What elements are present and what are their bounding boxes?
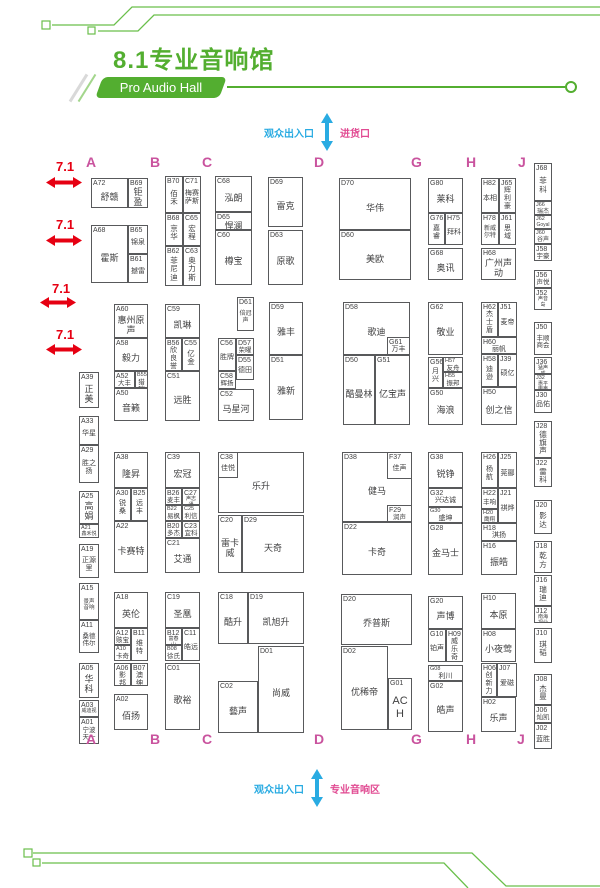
booth-B22: B22易枫 xyxy=(165,505,182,521)
booth-C27: C27声志通 xyxy=(182,488,200,505)
booth-A29: A29胜之扬 xyxy=(79,445,99,483)
booth-code: D70 xyxy=(340,179,410,187)
booth-code: G51 xyxy=(376,356,409,364)
booth-code: J68 xyxy=(535,164,551,172)
booth-D63: D63原歌 xyxy=(268,230,303,285)
hall-letter-B-top: B xyxy=(150,155,160,169)
booth-code: G28 xyxy=(429,524,462,532)
booth-name: 佰禾 xyxy=(166,185,182,212)
booth-name: 爱磁 xyxy=(498,672,516,696)
booth-A02: A02佰扬 xyxy=(114,694,148,730)
booth-A19: A19正源里 xyxy=(79,544,99,578)
booth-code: J08 xyxy=(535,675,551,683)
booth-D55: D55德田 xyxy=(236,355,254,380)
booth-code: D02 xyxy=(342,647,387,655)
booth-B56: B56欣良誉 xyxy=(165,338,182,371)
booth-C55: C55亿金 xyxy=(182,338,200,371)
left-right-arrow-icon xyxy=(40,297,76,308)
booth-code: H68 xyxy=(482,249,515,257)
booth-name: 广州声动 xyxy=(482,257,515,279)
booth-code: A39 xyxy=(80,373,98,381)
booth-code: H75 xyxy=(446,214,462,222)
booth-A38: A38隆昇 xyxy=(114,452,148,488)
booth-name: 皓声 xyxy=(429,690,462,731)
header-rule-end-circle xyxy=(565,81,577,93)
booth-A21: A21鑫禾悦 xyxy=(79,524,99,538)
booth-D02: D02优稀帝 xyxy=(341,646,388,730)
pro-audio-zone-label: 专业音响区 xyxy=(330,781,380,796)
booth-code: J20 xyxy=(535,501,551,509)
booth-name: 创新力 xyxy=(482,672,496,696)
booth-name: 本相 xyxy=(482,187,498,212)
booth-name: 本原 xyxy=(482,602,515,628)
booth-B65: B65锦泉 xyxy=(128,225,148,254)
booth-B12: B12富春山 xyxy=(165,628,182,645)
booth-name: 隆昇 xyxy=(115,461,147,487)
booth-code: J18 xyxy=(535,542,551,550)
booth-G08: G08利川 xyxy=(428,665,463,681)
booth-name: 声博 xyxy=(429,605,462,628)
left-right-arrow-icon xyxy=(46,235,82,246)
booth-name: 盛坤 xyxy=(429,515,462,523)
booth-code: C60 xyxy=(216,231,251,239)
booth-name: 富春山 xyxy=(166,637,181,645)
booth-G32: G32兴达诚 xyxy=(428,488,463,507)
hall-letter-C-bottom: C xyxy=(202,732,212,746)
booth-name: 杰曼 xyxy=(535,683,551,704)
hall-letter-B-bottom: B xyxy=(150,732,160,746)
booth-name: 威迪视 xyxy=(80,709,98,716)
booth-name: 钜盈 xyxy=(129,187,147,208)
booth-G62: G62敬业 xyxy=(428,302,463,355)
booth-D22: D22卡奇 xyxy=(342,522,412,575)
booth-code: G38 xyxy=(429,453,462,461)
aisle-label-3: 7.1 xyxy=(52,282,70,295)
booth-A25: A25高娟 xyxy=(79,491,99,524)
booth-name: 万丰 xyxy=(388,346,409,355)
booth-name: 谷声 xyxy=(535,237,551,244)
booth-code: D51 xyxy=(270,356,302,364)
left-right-arrow-icon xyxy=(46,344,82,355)
booth-name: 易枫 xyxy=(166,513,181,521)
booth-C23: C23宜科 xyxy=(182,521,200,538)
header-rule xyxy=(227,86,565,88)
hall-letter-C-top: C xyxy=(202,155,212,169)
booth-code: B62 xyxy=(166,247,182,255)
booth-code: J30 xyxy=(535,391,551,399)
booth-name: 毅力 xyxy=(115,347,147,370)
booth-name: 宏冠 xyxy=(166,461,199,487)
booth-H62: H62杰士盾 xyxy=(481,302,498,337)
booth-name: 马星河 xyxy=(219,398,253,420)
booth-D19: D19凯旭升 xyxy=(248,592,304,644)
booth-code: C65 xyxy=(184,214,200,222)
booth-code: H08 xyxy=(482,630,515,638)
booth-C56: C56胜牌 xyxy=(218,338,236,371)
up-down-arrow-icon xyxy=(311,769,323,807)
booth-name: 宏程 xyxy=(184,222,200,245)
booth-B07: B07澳绅 xyxy=(131,663,148,686)
booth-code: A19 xyxy=(80,545,98,553)
booth-H16: H16振皓 xyxy=(481,541,517,575)
booth-D60: D60美欧 xyxy=(339,230,411,280)
booth-code: A33 xyxy=(80,417,98,425)
booth-code: H02 xyxy=(482,698,515,706)
booth-name: 杨航 xyxy=(482,461,497,487)
booth-code: C19 xyxy=(166,593,199,601)
booth-G02: G02皓声 xyxy=(428,681,463,732)
booth-code: J25 xyxy=(499,453,516,461)
booth-name: 锐铮 xyxy=(429,461,462,487)
booth-B20: B20多杰 xyxy=(165,521,182,538)
booth-A39: A39正美 xyxy=(79,372,99,408)
booth-code: C55 xyxy=(183,339,199,347)
booth-name: 创之信 xyxy=(482,396,516,424)
booth-name: 优稀帝 xyxy=(342,655,387,729)
booth-name: 菲科 xyxy=(535,172,551,200)
booth-name: 品佑 xyxy=(535,399,551,412)
booth-C38: C38佳悦 xyxy=(218,452,238,478)
booth-name: 南海视业 xyxy=(535,615,551,623)
booth-A52: A52大丰 xyxy=(114,371,135,388)
booth-F37: F37佳声 xyxy=(387,452,412,479)
booth-name: 卡奇 xyxy=(115,653,130,661)
booth-code: C18 xyxy=(219,593,247,601)
booth-name: 樽宝 xyxy=(216,239,251,284)
booth-B11: B11维特 xyxy=(131,628,148,661)
booth-C52: C52马星河 xyxy=(218,389,254,421)
booth-H82: H82本相 xyxy=(481,178,499,213)
booth-C71: C71梅赛萨斯 xyxy=(183,176,201,213)
booth-name: 奥力斯 xyxy=(184,255,200,285)
booth-name: 德田 xyxy=(237,364,253,379)
booth-code: C51 xyxy=(166,372,199,380)
booth-code: J02 xyxy=(535,724,551,732)
booth-C51: C51远胜 xyxy=(165,371,200,421)
booth-code: H55 xyxy=(444,373,462,380)
booth-B25: B25远丰 xyxy=(131,488,148,521)
booth-code: A30 xyxy=(115,489,130,497)
booth-C65: C65宏程 xyxy=(183,213,201,246)
booth-code: H78 xyxy=(482,214,498,222)
booth-J66: J66瑞杰 xyxy=(534,201,552,215)
aisle-label-1: 7.1 xyxy=(56,160,74,173)
booth-G38: G38锐铮 xyxy=(428,452,463,488)
booth-name: 卡赛特 xyxy=(115,530,147,572)
booth-name: 澳绅 xyxy=(132,672,147,686)
booth-J22: J22雷科 xyxy=(534,458,552,487)
hall-letter-H-top: H xyxy=(466,155,476,169)
booth-A68: A68霍斯 xyxy=(91,225,128,283)
booth-name: 亿宝声 xyxy=(376,364,409,424)
booth-code: G02 xyxy=(429,682,462,690)
booth-code: D22 xyxy=(343,523,411,531)
booth-name: 宜科 xyxy=(183,530,199,538)
booth-D01: D01尚威 xyxy=(258,646,304,733)
booth-code: H16 xyxy=(482,542,516,550)
bottom-gate: 观众出入口 专业音响区 xyxy=(17,768,600,808)
booth-code: G10 xyxy=(429,630,445,638)
booth-code: D60 xyxy=(340,231,410,239)
booth-code: G76 xyxy=(429,214,444,222)
booth-name: 兴达诚 xyxy=(429,497,462,506)
booth-code: C68 xyxy=(216,177,251,185)
booth-name: 英伦 xyxy=(115,601,147,627)
booth-J08: J08杰曼 xyxy=(534,674,552,705)
booth-code: A60 xyxy=(115,305,147,313)
booth-A05: A05华科 xyxy=(79,663,99,698)
booth-name: 欣良誉 xyxy=(166,347,181,371)
booth-code: H50 xyxy=(482,388,516,396)
booth-C39: C39宏冠 xyxy=(165,452,200,488)
booth-D50: D50酷曼林 xyxy=(343,355,375,425)
booth-D29: D29天奇 xyxy=(242,515,304,573)
hall-letter-D-bottom: D xyxy=(314,732,324,746)
booth-code: A15 xyxy=(80,584,98,592)
booth-code: H57 xyxy=(444,358,462,365)
booth-C11: C11皓远 xyxy=(182,628,200,661)
booth-H08: H08小夜莺 xyxy=(481,629,516,662)
booth-C01: C01歌裕 xyxy=(165,663,200,730)
booth-C21: C21艾通 xyxy=(165,538,200,573)
booth-name: 正美 xyxy=(80,381,98,407)
aisle-label-4: 7.1 xyxy=(56,328,74,341)
booth-name: 德旗声 xyxy=(535,430,551,457)
circuit-decoration-top xyxy=(0,0,600,40)
booth-H18: H18淇扬 xyxy=(481,523,517,541)
booth-A12: A12赅宝 xyxy=(114,628,131,645)
booth-H60: H60丽帆 xyxy=(481,337,517,354)
booth-code: A22 xyxy=(115,522,147,530)
booth-code: D58 xyxy=(344,303,409,311)
booth-G51: G51亿宝声 xyxy=(375,355,410,425)
booth-code: A50 xyxy=(115,389,147,397)
booth-name: 蓝胜 xyxy=(535,732,551,748)
booth-code: G56 xyxy=(429,358,442,366)
booth-code: B55 xyxy=(136,372,147,379)
booth-J10: J10琪韬 xyxy=(534,628,552,663)
booth-code: D50 xyxy=(344,356,374,364)
booth-H20: H20鹰翔 xyxy=(481,509,498,523)
booth-code: G50 xyxy=(429,389,462,397)
booth-name: 皓远 xyxy=(183,637,199,660)
booth-H75: H75拜科 xyxy=(445,213,463,245)
booth-name: 荣曜 xyxy=(237,347,253,355)
booth-name: 思域 xyxy=(500,222,515,244)
booth-code: D61 xyxy=(238,298,253,306)
booth-H58: H58迪逊 xyxy=(481,354,498,387)
booth-G10: G10铂声 xyxy=(428,629,446,662)
booth-code: A38 xyxy=(115,453,147,461)
booth-J39: J39硕亿 xyxy=(498,354,517,387)
booth-name: 友舟 xyxy=(444,365,462,372)
booth-H22: H22丰响 xyxy=(481,488,498,509)
booth-code: A18 xyxy=(115,593,147,601)
booth-code: J07 xyxy=(498,664,516,672)
booth-code: H22 xyxy=(482,489,497,497)
booth-name: 润声 xyxy=(388,514,411,522)
booth-name: 奥讯 xyxy=(429,257,462,279)
booth-name: 麦丰 xyxy=(166,497,181,505)
booth-code: F37 xyxy=(388,453,411,461)
booth-D59: D59雅丰 xyxy=(269,302,303,355)
booth-code: C11 xyxy=(183,629,199,637)
booth-G76: G76嘉睿 xyxy=(428,213,445,245)
booth-name: 乾方 xyxy=(535,550,551,572)
booth-A60: A60惠州原声 xyxy=(114,304,148,338)
booth-name: 新威尔特 xyxy=(482,222,498,244)
booth-code: J21 xyxy=(499,489,516,497)
booth-C25: C25利信 xyxy=(182,505,200,521)
booth-name: 莱科 xyxy=(429,187,462,212)
booth-name: 海浪 xyxy=(429,397,462,424)
booth-code: C02 xyxy=(219,682,257,690)
hall-letter-A-bottom: A xyxy=(86,732,96,746)
booth-name: 锐桑 xyxy=(115,497,130,520)
booth-code: H82 xyxy=(482,179,498,187)
booth-name: 鑫禾悦 xyxy=(80,532,98,538)
booth-name: 徐氏 xyxy=(166,653,181,661)
booth-G28: G28金马士 xyxy=(428,523,463,575)
hall-letter-J-top: J xyxy=(518,155,526,169)
booth-H68: H68广州声动 xyxy=(481,248,516,280)
booth-name: 乔普斯 xyxy=(342,603,411,644)
freight-entrance-label: 进货口 xyxy=(340,125,370,140)
booth-code: A29 xyxy=(80,446,98,454)
header-slash-decoration-green xyxy=(78,74,97,102)
booth-name: 佳悦 xyxy=(219,461,237,477)
booth-code: D55 xyxy=(237,356,253,364)
booth-code: C39 xyxy=(166,453,199,461)
hall-letter-A-top: A xyxy=(86,155,96,169)
booth-name: 宇豪 xyxy=(535,253,551,261)
booth-name: 酷升 xyxy=(219,601,247,643)
booth-name: 威乐奇 xyxy=(447,638,462,662)
booth-name: 声音岛 xyxy=(535,297,551,309)
booth-H09: H09威乐奇 xyxy=(446,629,463,662)
booth-name: 惠州原声 xyxy=(115,313,147,337)
booth-G50: G50海浪 xyxy=(428,388,463,425)
booth-code: A25 xyxy=(80,492,98,500)
booth-name: 佰扬 xyxy=(115,703,147,729)
booth-name: 桑德伟尔 xyxy=(80,629,98,652)
booth-J20: J20影达 xyxy=(534,500,552,534)
booth-A22: A22卡赛特 xyxy=(114,521,148,573)
booth-name: 原歌 xyxy=(269,239,302,284)
booth-B55: B55猎瑞 xyxy=(135,371,148,388)
booth-name: 乐声 xyxy=(482,706,515,731)
booth-B26: B26麦丰 xyxy=(165,488,182,505)
booth-name: 祺烨 xyxy=(499,497,516,522)
booth-C18: C18酷升 xyxy=(218,592,248,644)
booth-name: 远胜 xyxy=(166,380,199,420)
booth-name: 雷克 xyxy=(269,186,302,226)
hall-letter-G-bottom: G xyxy=(411,732,422,746)
booth-name: 拜科 xyxy=(446,222,462,244)
hall-letter-H-bottom: H xyxy=(466,732,476,746)
booth-name: 凯琳 xyxy=(166,313,199,337)
booth-G61: G61万丰 xyxy=(387,337,410,355)
booth-J50: J50丰顺商会 xyxy=(534,322,552,355)
booth-code: H26 xyxy=(482,453,497,461)
booth-J25: J25莞郦 xyxy=(498,452,517,488)
booth-code: J60 xyxy=(535,230,551,237)
booth-name: 京华 xyxy=(166,222,182,245)
booth-name: 大丰 xyxy=(115,380,134,388)
booth-name: 梅赛萨斯 xyxy=(184,185,200,212)
booth-name: 振邦 xyxy=(444,380,462,388)
booth-J51: J51麦帝 xyxy=(498,302,517,337)
booth-name: 小夜莺 xyxy=(482,638,515,661)
booth-code: A05 xyxy=(80,664,98,672)
booth-name: 月兴 xyxy=(429,366,442,387)
booth-B61: B61撼雷 xyxy=(128,254,148,283)
booth-name: 悍澜 xyxy=(216,221,251,230)
floorplan-page: 8.1专业音响馆 Pro Audio Hall 观众出入口 进货口 A72舒赣B… xyxy=(0,0,600,888)
booth-name: 雷科 xyxy=(535,467,551,486)
booth-J68: J68菲科 xyxy=(534,163,552,201)
booth-D70: D70华伟 xyxy=(339,178,411,230)
booth-code: B68 xyxy=(166,214,182,222)
booth-code: G68 xyxy=(429,249,462,257)
booth-code: A72 xyxy=(92,179,127,187)
booth-name: 美欧 xyxy=(340,239,410,279)
booth-A18: A18英伦 xyxy=(114,592,148,628)
booth-code: C38 xyxy=(219,453,237,461)
booth-code: G30 xyxy=(429,508,462,515)
booth-B70: B70佰禾 xyxy=(165,176,183,213)
booth-D20: D20乔普斯 xyxy=(341,594,412,645)
booth-name: 天奇 xyxy=(243,524,303,572)
booth-D65: D65悍澜 xyxy=(215,212,252,230)
booth-name: 菲尼迪 xyxy=(166,255,182,285)
booth-name: 华伟 xyxy=(340,187,410,229)
booth-name: 霍斯 xyxy=(92,234,127,282)
booth-name: 琪韬 xyxy=(535,637,551,662)
booth-code: B70 xyxy=(166,177,182,185)
booth-A06: A06影邦 xyxy=(114,663,131,686)
booth-code: B25 xyxy=(132,489,147,497)
booth-J52: J52声音岛 xyxy=(534,288,552,310)
booth-G68: G68奥讯 xyxy=(428,248,463,280)
booth-A15: A15景声音响 xyxy=(79,583,99,620)
booth-J07: J07爱磁 xyxy=(497,663,517,697)
booth-H50: H50创之信 xyxy=(481,387,517,425)
booth-name: 锦泉 xyxy=(129,234,147,253)
booth-name: 声悦 xyxy=(535,279,551,287)
booth-name: 惠平电声 xyxy=(535,382,551,390)
visitor-entrance-label-top: 观众出入口 xyxy=(264,125,314,140)
booth-code: G01 xyxy=(389,679,411,687)
booth-name: 丽帆 xyxy=(482,346,516,354)
booth-name: 莞郦 xyxy=(499,461,516,487)
booth-C20: C20雷卡威 xyxy=(218,515,242,573)
booth-code: A02 xyxy=(115,695,147,703)
booth-name: 华科 xyxy=(80,672,98,697)
booth-code: J10 xyxy=(535,629,551,637)
booth-G20: G20声博 xyxy=(428,596,463,629)
booth-code: B61 xyxy=(129,255,147,263)
booth-H26: H26杨航 xyxy=(481,452,498,488)
booth-code: D20 xyxy=(342,595,411,603)
booth-A30: A30锐桑 xyxy=(114,488,131,521)
booth-A11: A11桑德伟尔 xyxy=(79,620,99,653)
booth-name: 声志通 xyxy=(183,497,199,505)
booth-code: G62 xyxy=(429,303,462,311)
booth-name: 正源里 xyxy=(80,553,98,577)
booth-code: G08 xyxy=(429,666,462,673)
booth-C02: C02藝声 xyxy=(218,681,258,733)
